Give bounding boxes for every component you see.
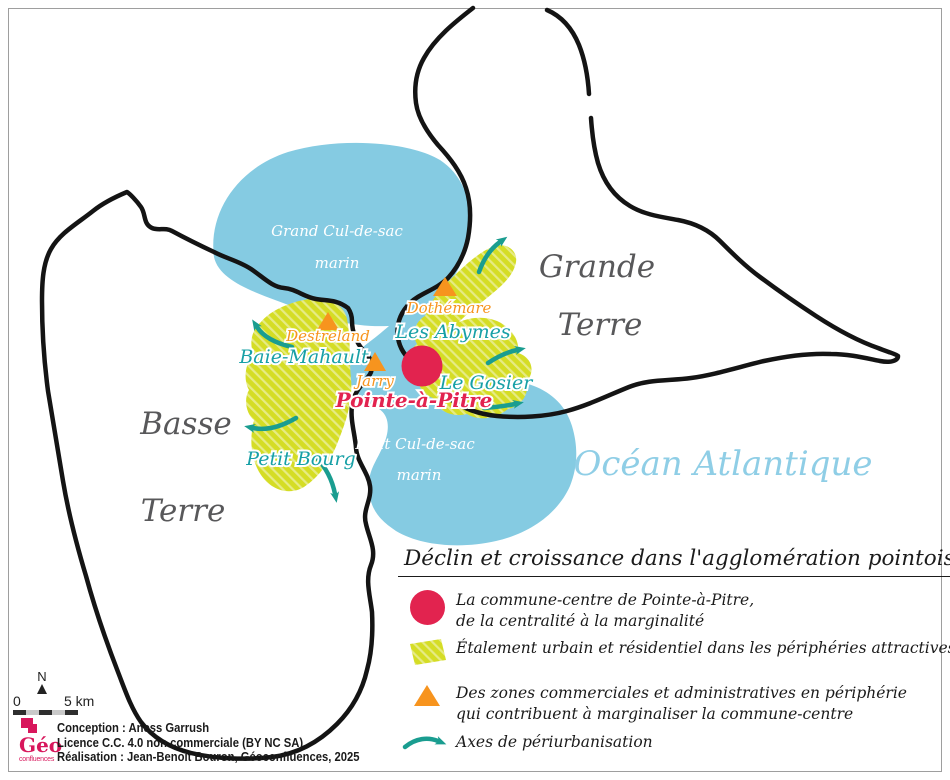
north-arrow-icon: [37, 684, 47, 694]
pointe-a-pitre-circle: [402, 346, 443, 387]
logo-confluences-text: confluences: [19, 756, 57, 764]
credit-licence: Licence C.C. 4.0 non commerciale (BY NC …: [57, 736, 360, 751]
label-baie-mahault: Baie-Mahault: [238, 346, 369, 368]
logo-geo-text: Géo: [19, 734, 57, 756]
geoconfluences-logo: Géo confluences: [19, 718, 57, 772]
legend-item-text: Axes de périurbanisation: [456, 732, 653, 753]
legend-item-text: de la centralité à la marginalité: [456, 611, 754, 632]
teal-arrow-icon: [402, 732, 452, 752]
credit-realisation: Réalisation : Jean-Benoît Bouron, Géocon…: [57, 750, 360, 765]
scale-end-label: 5 km: [64, 693, 94, 709]
label-jarry: Jarry: [353, 372, 394, 390]
legend-title: Déclin et croissance dans l'agglomératio…: [398, 546, 950, 577]
label-grand-cul-de-sac-marin: marin: [315, 254, 360, 272]
legend: Déclin et croissance dans l'agglomératio…: [398, 546, 946, 577]
legend-item-etalement: Étalement urbain et résidentiel dans les…: [398, 638, 950, 666]
label-grande-terre-1: Grande: [539, 249, 655, 285]
label-les-abymes: Les Abymes: [394, 321, 511, 343]
label-pointe-a-pitre: Pointe-à-Pitre: [335, 388, 493, 412]
label-grand-cul-de-sac: Grand Cul-de-sac: [271, 222, 403, 240]
credit-conception: Conception : Aness Garrush: [57, 721, 360, 736]
scale-bar: [13, 710, 78, 715]
label-grande-terre-2: Terre: [558, 307, 643, 343]
label-dothemare: Dothémare: [406, 299, 492, 317]
orange-triangle-icon: [414, 685, 440, 706]
label-destreland: Destreland: [285, 327, 370, 345]
yellow-hatch-icon: [407, 638, 447, 666]
legend-item-text: La commune-centre de Pointe-à-Pitre,: [456, 590, 754, 611]
scale-start-label: 0: [13, 693, 21, 709]
north-arrow: N: [30, 670, 54, 694]
legend-item-zones-commerciales: Des zones commerciales et administrative…: [398, 683, 907, 725]
legend-item-text: Étalement urbain et résidentiel dans les…: [456, 638, 950, 659]
legend-item-text: Des zones commerciales et administrative…: [456, 683, 907, 704]
north-label: N: [30, 670, 54, 683]
legend-item-axes: Axes de périurbanisation: [398, 732, 653, 753]
credits: Conception : Aness Garrush Licence C.C. …: [57, 721, 360, 765]
label-petit-bourg: Petit Bourg: [245, 448, 355, 470]
label-ocean-atlantique: Océan Atlantique: [574, 444, 873, 484]
label-basse-terre-2: Terre: [141, 493, 226, 529]
geoconfluences-logo-mark: [19, 718, 57, 734]
label-basse-terre-1: Basse: [139, 406, 231, 442]
label-petit-cul-de-sac-marin: marin: [397, 466, 442, 484]
legend-item-text: qui contribuent à marginaliser la commun…: [456, 704, 907, 725]
pink-circle-icon: [410, 590, 445, 625]
legend-item-commune-centre: La commune-centre de Pointe-à-Pitre, de …: [398, 590, 754, 632]
coastline-grande-terre-north-a: [547, 10, 589, 94]
label-petit-cul-de-sac: Petit Cul-de-sac: [354, 435, 475, 453]
map-figure: Grand Cul-de-sac marin Petit Cul-de-sac …: [0, 0, 950, 780]
